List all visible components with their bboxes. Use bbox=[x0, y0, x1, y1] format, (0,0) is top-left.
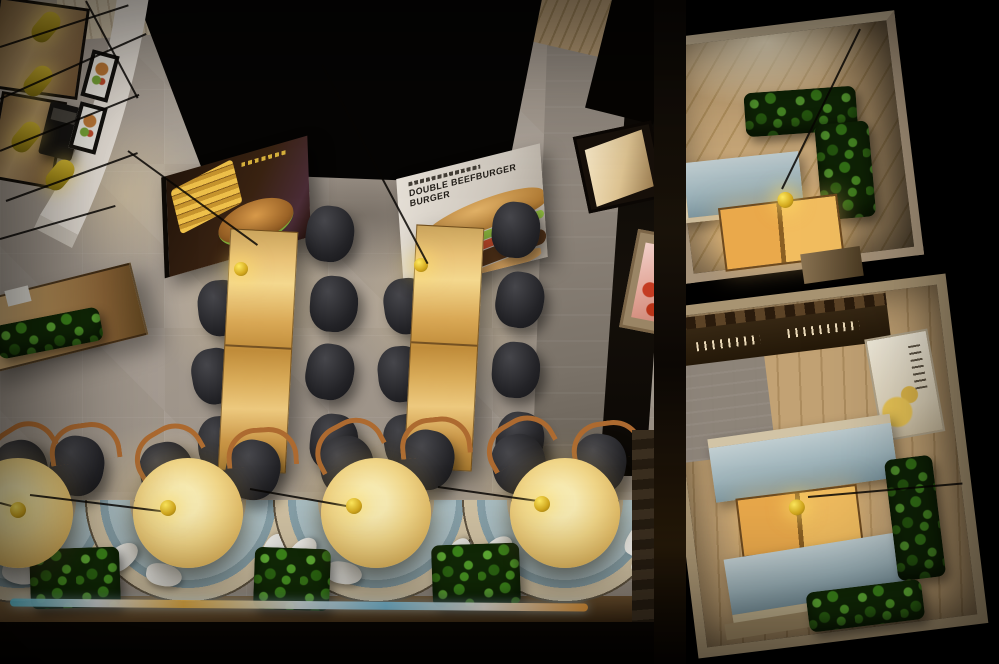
booth-pendant-lamp bbox=[346, 498, 362, 514]
menu-board-small-text bbox=[241, 150, 287, 167]
booth-pendant-lamp bbox=[10, 502, 26, 518]
hangers bbox=[787, 320, 860, 338]
coat-rack-shelf bbox=[675, 293, 891, 366]
planter-box bbox=[431, 542, 521, 607]
main-dining-floor: DOUBLE BEEFBURGER BURGER bbox=[0, 0, 654, 664]
corridor-wall bbox=[654, 0, 686, 664]
booth-round-table bbox=[133, 458, 243, 568]
private-room-bottom bbox=[656, 274, 989, 659]
booth-round-table bbox=[510, 458, 620, 568]
booth-round-table bbox=[321, 458, 431, 568]
dining-chair bbox=[302, 340, 359, 403]
booth-pendant-lamp bbox=[160, 500, 176, 516]
private-rooms-wing bbox=[654, 0, 999, 664]
poster-text-marks bbox=[908, 344, 927, 389]
private-room-top bbox=[656, 10, 924, 283]
restaurant-topview-render: DOUBLE BEEFBURGER BURGER bbox=[0, 0, 999, 664]
hangers bbox=[696, 335, 761, 352]
wall-shelf-box-interior bbox=[585, 129, 654, 206]
booth-pendant-lamp bbox=[534, 496, 550, 512]
table-pendant-lamp bbox=[234, 262, 248, 276]
dining-chair bbox=[308, 274, 360, 333]
wall-art-picture bbox=[631, 243, 654, 326]
bottom-dark-band bbox=[0, 622, 654, 664]
